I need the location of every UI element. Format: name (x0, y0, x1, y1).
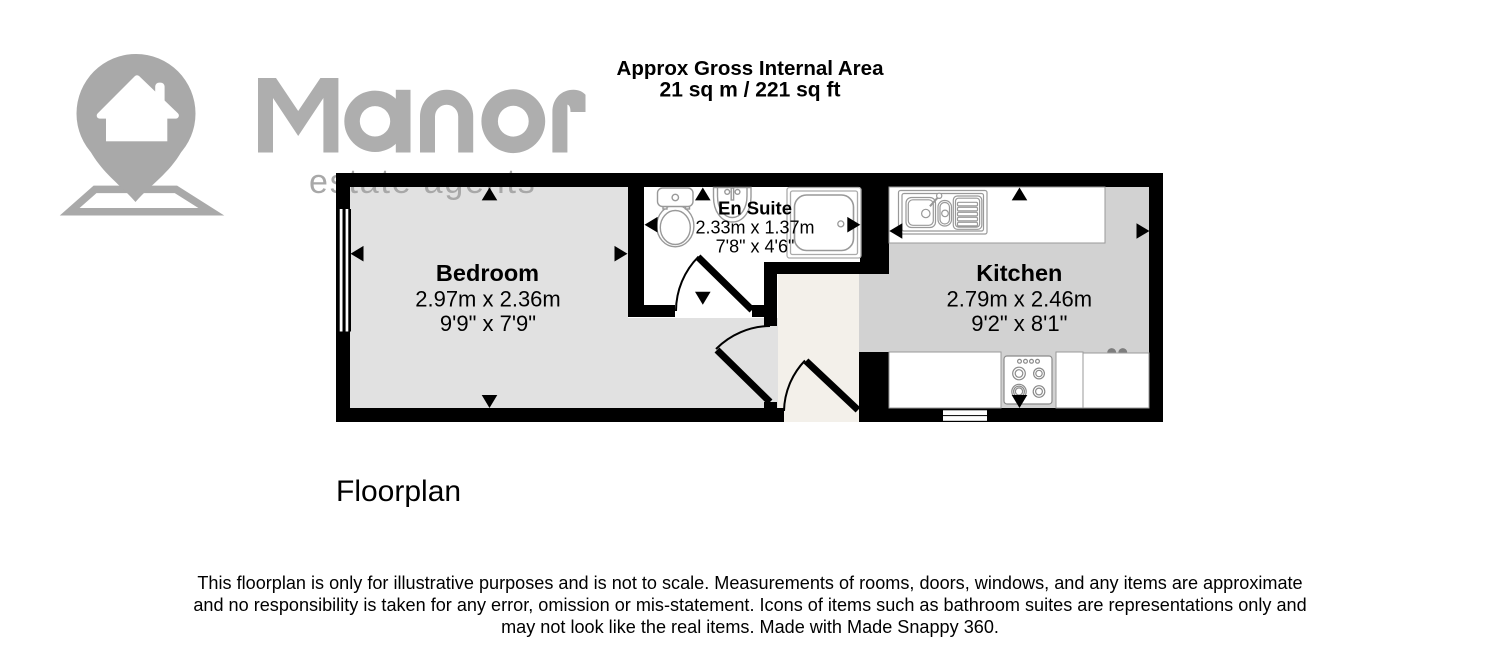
svg-text:This floorplan is only for ill: This floorplan is only for illustrative … (197, 573, 1302, 593)
svg-text:7'8" x 4'6": 7'8" x 4'6" (716, 237, 795, 257)
svg-text:and no responsibility is taken: and no responsibility is taken for any e… (193, 595, 1306, 615)
svg-text:21 sq m / 221 sq ft: 21 sq m / 221 sq ft (660, 79, 841, 102)
svg-text:2.33m x 1.37m: 2.33m x 1.37m (695, 218, 814, 238)
svg-text:Kitchen: Kitchen (976, 260, 1062, 286)
svg-text:may not look like the real ite: may not look like the real items. Made w… (501, 617, 999, 637)
svg-text:Bedroom: Bedroom (436, 260, 539, 286)
svg-text:9'2" x 8'1": 9'2" x 8'1" (971, 311, 1067, 336)
svg-text:Approx Gross Internal Area: Approx Gross Internal Area (617, 57, 885, 80)
svg-text:2.97m x 2.36m: 2.97m x 2.36m (415, 287, 561, 312)
svg-text:En Suite: En Suite (718, 198, 792, 219)
svg-text:2.79m x 2.46m: 2.79m x 2.46m (947, 287, 1093, 312)
svg-text:Floorplan: Floorplan (336, 475, 461, 508)
svg-text:9'9" x 7'9": 9'9" x 7'9" (440, 311, 536, 336)
